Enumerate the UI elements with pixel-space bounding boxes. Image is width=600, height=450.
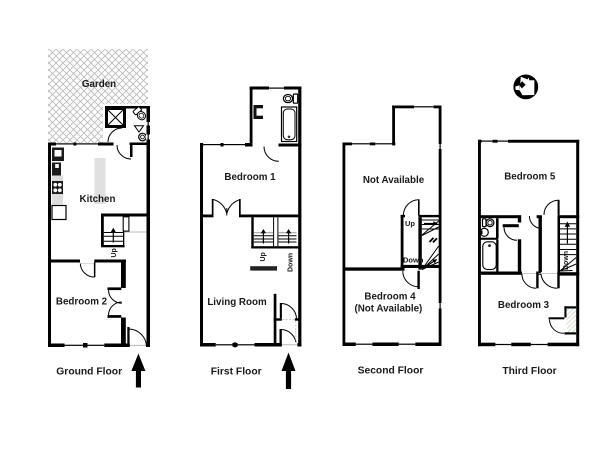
- svg-text:Up: Up: [405, 219, 415, 228]
- svg-text:Down: Down: [403, 256, 424, 265]
- svg-text:First Floor: First Floor: [211, 366, 262, 377]
- svg-text:Down: Down: [563, 251, 570, 270]
- svg-text:Bedroom 1: Bedroom 1: [224, 172, 276, 183]
- svg-text:Second Floor: Second Floor: [358, 366, 424, 377]
- svg-text:Third Floor: Third Floor: [502, 366, 556, 377]
- svg-text:Bedroom 2: Bedroom 2: [56, 297, 108, 308]
- svg-text:Ground Floor: Ground Floor: [56, 366, 122, 377]
- svg-text:Living Room: Living Room: [207, 297, 267, 308]
- svg-text:Garden: Garden: [82, 79, 116, 90]
- svg-text:Bedroom 5: Bedroom 5: [504, 172, 556, 183]
- svg-text:(Not Available): (Not Available): [354, 304, 422, 315]
- svg-text:Not Available: Not Available: [363, 175, 425, 186]
- svg-text:Up: Up: [111, 248, 118, 257]
- svg-text:Bedroom 3: Bedroom 3: [498, 300, 550, 311]
- svg-text:Kitchen: Kitchen: [80, 194, 116, 205]
- svg-text:Bedroom 4: Bedroom 4: [364, 292, 416, 303]
- svg-text:Down: Down: [288, 253, 295, 272]
- svg-text:Up: Up: [260, 252, 267, 261]
